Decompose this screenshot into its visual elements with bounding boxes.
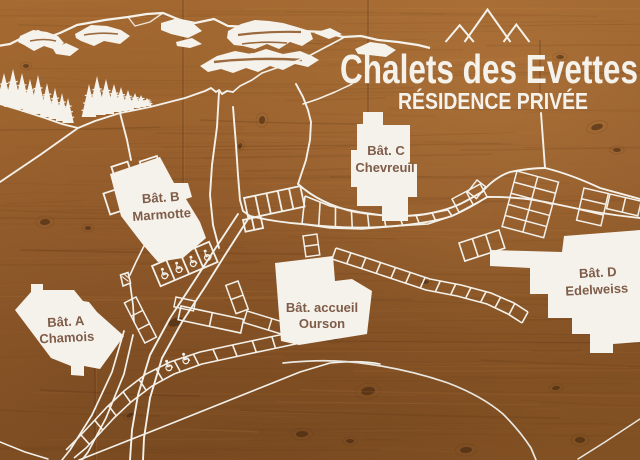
svg-text:Chevreuil: Chevreuil: [355, 160, 414, 175]
svg-text:Bât. A: Bât. A: [47, 313, 85, 330]
svg-text:Bât. D: Bât. D: [579, 264, 617, 281]
svg-text:Ourson: Ourson: [299, 316, 345, 331]
svg-text:Bât. C: Bât. C: [367, 143, 405, 158]
svg-text:RÉSIDENCE PRIVÉE: RÉSIDENCE PRIVÉE: [398, 87, 588, 114]
svg-text:Bât. B: Bât. B: [141, 189, 180, 207]
svg-text:Bât. accueil: Bât. accueil: [286, 300, 358, 315]
svg-text:Chalets des Evettes: Chalets des Evettes: [340, 46, 638, 92]
svg-text:Chamois: Chamois: [39, 329, 95, 347]
